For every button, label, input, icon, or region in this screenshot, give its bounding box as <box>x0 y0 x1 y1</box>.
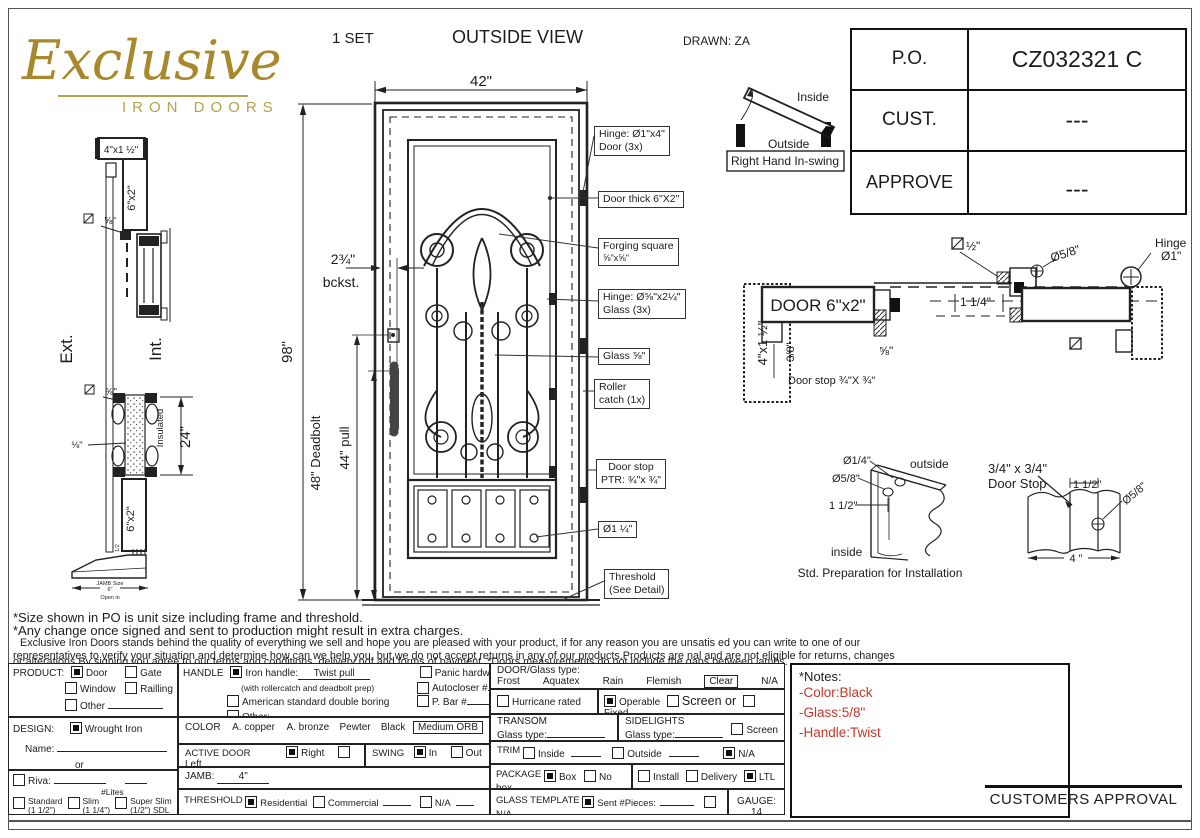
trim-inside-blank[interactable] <box>571 746 601 757</box>
stop-d112: 1 1/2" <box>1073 479 1101 491</box>
hurricane-label[interactable]: Hurricane rated <box>512 697 581 708</box>
design-or-label: or <box>69 760 90 771</box>
threshold-commercial-label[interactable]: Commercial <box>328 798 379 809</box>
product-window-label[interactable]: Window <box>80 684 116 695</box>
active-right-checkbox[interactable] <box>286 746 298 758</box>
lites-superslim-sub: (1/2") SDL <box>130 805 169 815</box>
transom-label: TRANSOM <box>497 716 611 727</box>
operable-label[interactable]: Operable <box>619 697 660 708</box>
threshold-na-label[interactable]: N/A <box>435 798 450 809</box>
customers-approval-label: CUSTOMERS APPROVAL <box>965 791 1200 808</box>
jamb-open-label: Open in <box>100 595 119 601</box>
prep-detail <box>855 461 946 560</box>
backset-dim: 2¾" <box>331 251 355 267</box>
handle-pbar-blank[interactable] <box>467 694 490 705</box>
callout-text: Hinge: Ø⅝"x2¼" <box>603 291 681 304</box>
prep-d58: Ø5/8" <box>832 473 860 485</box>
transom-cell: TRANSOM Glass type: <box>490 714 618 741</box>
callout-text: Threshold <box>609 571 664 584</box>
callout-text: Roller <box>599 381 645 394</box>
threshold-label: THRESHOLD <box>184 795 243 806</box>
side-member-lower: 6"x2" <box>125 506 137 532</box>
plan-58-dim: ⅝" <box>879 344 893 358</box>
package-ltl-checkbox[interactable] <box>744 770 756 782</box>
handle-american-label[interactable]: American standard double boring <box>242 697 389 708</box>
stop-d4: 4 " <box>1069 553 1082 565</box>
swing-form-label: SWING <box>372 748 404 759</box>
order-notes-title: *Notes: <box>799 669 1061 684</box>
product-window-checkbox[interactable] <box>65 682 77 694</box>
color-pewter-option[interactable]: Pewter <box>340 722 371 733</box>
lites-slim-checkbox[interactable] <box>68 797 80 809</box>
order-note-color: -Color:Black <box>799 685 1061 700</box>
product-cell: PRODUCT: Door Gate Window Railling Other <box>8 663 178 717</box>
swing-cell: SWING In Out <box>365 744 490 767</box>
prep-caption: Std. Preparation for Installation <box>798 566 963 580</box>
prep-d112: 1 1/2" <box>829 500 857 512</box>
callout-glass-hinge: Hinge: Ø⅝"x2¼" Glass (3x) <box>598 289 686 319</box>
riva-blank2[interactable] <box>125 773 147 784</box>
plan-d58-label: Ø5/8" <box>1049 242 1082 265</box>
jamb-size-value: 6" <box>107 587 112 593</box>
plan-hinge-label1: Hinge <box>1155 236 1187 250</box>
handle-american-checkbox[interactable] <box>227 695 239 707</box>
callout-threshold: Threshold (See Detail) <box>604 569 669 599</box>
color-label: COLOR <box>185 722 221 733</box>
stop-d58: Ø5/8" <box>1120 480 1149 507</box>
glass-flemish-option[interactable]: Flemish <box>646 676 681 687</box>
screen-checkbox[interactable] <box>667 695 679 707</box>
design-cell: DESIGN: Wrought Iron Name: or <box>8 717 178 770</box>
hurricane-cell: Hurricane rated <box>490 689 598 714</box>
jamb-value[interactable]: 4" <box>217 771 269 784</box>
trim-outside-checkbox[interactable] <box>612 747 624 759</box>
plan-door-label: DOOR 6"x2" <box>770 296 865 315</box>
handle-other-blank[interactable] <box>273 709 353 717</box>
callout-text: PTR: ¾"x ¾" <box>601 474 661 487</box>
product-other-blank[interactable] <box>108 698 163 709</box>
side-five8-upper: ⅝" <box>104 216 116 227</box>
product-other-checkbox[interactable] <box>65 699 77 711</box>
design-name-label: Name: <box>25 744 54 755</box>
gt-na-checkbox[interactable] <box>704 796 716 808</box>
sidelights-screen-checkbox[interactable] <box>731 723 743 735</box>
swing-in-label[interactable]: In <box>429 748 437 759</box>
callout-text: catch (1x) <box>599 394 645 407</box>
trim-cell: TRIM Inside Outside N/A <box>490 741 785 764</box>
ext-label: Ext. <box>57 334 76 363</box>
side-top-dim: 4"x1 ½" <box>104 145 139 156</box>
design-wrought-label[interactable]: Wrought Iron <box>85 724 143 735</box>
callout-door-hinge: Hinge: Ø1"x4" Door (3x) <box>594 126 670 156</box>
order-note-handle: -Handle:Twist <box>799 725 1061 740</box>
handle-pbar-label[interactable]: P. Bar # <box>432 697 467 708</box>
color-mediumorb-selected[interactable]: Medium ORB <box>413 721 483 734</box>
stop-title1: 3/4" x 3/4" <box>988 461 1047 476</box>
int-label: Int. <box>146 337 165 361</box>
callout-text: Door (3x) <box>599 141 665 154</box>
package-right-cell: Install Delivery LTL <box>632 764 785 789</box>
riva-label[interactable]: Riva: <box>28 776 51 787</box>
order-note-glass: -Glass:5/8" <box>799 705 1061 720</box>
fixed-checkbox[interactable] <box>743 695 755 707</box>
package-install-checkbox[interactable] <box>638 770 650 782</box>
handle-iron-value[interactable]: Twist pull <box>298 668 370 680</box>
glass-template-label: GLASS TEMPLATE <box>496 795 580 806</box>
sidelights-cell: SIDELIGHTS Glass type: Screen <box>618 714 785 741</box>
operable-checkbox[interactable] <box>604 695 616 707</box>
riva-blank1[interactable] <box>54 773 106 784</box>
package-box-label[interactable]: Box <box>559 772 576 783</box>
stop-title2: Door Stop <box>988 476 1047 491</box>
callout-text: Ø1 ¼" <box>603 523 632 536</box>
handle-iron-label[interactable]: Iron handle: <box>245 668 298 679</box>
active-door-cell: ACTIVE DOOR Right Left <box>178 744 365 767</box>
plan-doorstop-label: Door stop ¾"X ¾" <box>788 375 875 387</box>
hurricane-checkbox[interactable] <box>497 695 509 707</box>
callout-text: ⅝"x⅝" <box>603 253 674 264</box>
transom-glass-blank[interactable] <box>547 727 605 738</box>
product-door-label[interactable]: Door <box>86 668 108 679</box>
color-cell: COLOR A. copper A. bronze Pewter Black M… <box>178 717 490 744</box>
jamb-label: JAMB: <box>185 771 214 782</box>
door-outside-view <box>298 81 600 605</box>
sidelights-glass-blank[interactable] <box>675 727 723 738</box>
glass-clear-option-selected[interactable]: Clear <box>704 675 738 688</box>
operable-cell: Operable Screen or Fixed <box>598 689 785 714</box>
package-cell: PACKAGE Box No box <box>490 764 632 789</box>
gt-sent-label[interactable]: Sent #Pieces: <box>597 798 656 809</box>
trim-na-label[interactable]: N/A <box>738 749 755 760</box>
threshold-residential-checkbox[interactable] <box>245 796 257 808</box>
side-eighth-dim: ⅛" <box>71 440 82 451</box>
active-right-label[interactable]: Right <box>301 748 324 759</box>
callout-door-thick: Door thick 6"X2" <box>598 191 684 208</box>
lites-standard-sub: (1 1/2") <box>28 805 56 815</box>
plan-jamb-label: 4"x1 ½" <box>755 320 770 365</box>
note-line-3: Exclusive Iron Doors stands behind the q… <box>20 637 860 649</box>
insulated-label: Insulated <box>155 409 166 448</box>
handle-iron-note: (with rollercatch and deadbolt prep) <box>241 683 374 693</box>
pull-dim: 44" pull <box>337 426 352 469</box>
sidelights-glass-label: Glass type: <box>625 730 675 741</box>
screen-label[interactable]: Screen or <box>682 694 736 708</box>
active-door-label: ACTIVE DOOR <box>185 748 250 759</box>
callout-door-stop: Door stop PTR: ¾"x ¾" <box>596 459 666 489</box>
callout-text: Hinge: Ø1"x4" <box>599 128 665 141</box>
trim-inside-checkbox[interactable] <box>523 747 535 759</box>
design-name-blank[interactable] <box>57 741 167 752</box>
threshold-na-blank[interactable] <box>456 795 474 806</box>
lites-standard-checkbox[interactable] <box>13 797 25 809</box>
lites-header: #Lites <box>101 787 124 797</box>
active-left-label[interactable]: Left <box>185 759 202 767</box>
callout-text: (See Detail) <box>609 584 664 597</box>
backset-label: bckst. <box>323 274 360 290</box>
handle-panic-checkbox[interactable] <box>420 666 432 678</box>
gauge-cell: GAUGE: 14 <box>728 789 785 815</box>
callout-diameter: Ø1 ¼" <box>598 521 637 538</box>
threshold-cell: THRESHOLD Residential Commercial N/A <box>178 789 490 815</box>
gt-sent-checkbox[interactable] <box>582 796 594 808</box>
gt-na-label[interactable]: N/A <box>496 809 512 815</box>
callout-text: Door stop <box>601 461 661 474</box>
gauge-label: GAUGE: 14 <box>737 796 776 815</box>
trim-outside-label[interactable]: Outside <box>627 749 661 760</box>
color-bronze-option[interactable]: A. bronze <box>286 722 329 733</box>
page-bottom-line <box>8 820 1192 822</box>
plan-half-dim: ½" <box>966 239 980 253</box>
package-delivery-label[interactable]: Delivery <box>701 772 737 783</box>
design-wrought-checkbox[interactable] <box>70 722 82 734</box>
callout-text: Door thick 6"X2" <box>603 193 679 206</box>
transom-glass-label: Glass type: <box>497 730 547 741</box>
gt-sent-blank[interactable] <box>660 795 694 806</box>
signature-line[interactable] <box>985 785 1182 788</box>
doorglass-cell: DOOR/Glass type: Frost Aquatex Rain Flem… <box>490 663 785 689</box>
plan-114-dim: 1 1/4" <box>960 295 991 309</box>
plan-38-dim: 3/8" <box>785 342 797 361</box>
prep-d14: Ø1/4" <box>843 455 871 467</box>
callout-glass: Glass ⅝" <box>598 348 650 365</box>
plan-hinge-label2: Ø1" <box>1161 249 1181 263</box>
threshold-na-checkbox[interactable] <box>420 796 432 808</box>
trim-inside-label[interactable]: Inside <box>538 749 565 760</box>
prep-inside-label: inside <box>831 545 863 559</box>
handle-iron-checkbox[interactable] <box>230 666 242 678</box>
side-half-dim: 1/2 <box>115 544 121 552</box>
trim-outside-blank[interactable] <box>669 746 699 757</box>
product-gate-label[interactable]: Gate <box>140 668 162 679</box>
glass-template-cell: GLASS TEMPLATE Sent #Pieces: N/A <box>490 789 728 815</box>
threshold-commercial-blank[interactable] <box>383 795 411 806</box>
glass-frost-option[interactable]: Frost <box>497 676 520 687</box>
jamb-cell: JAMB: 4" <box>178 767 490 789</box>
product-railing-checkbox[interactable] <box>125 682 137 694</box>
dim-42: 42" <box>470 73 492 90</box>
note-line-2: *Any change once signed and sent to prod… <box>13 623 463 638</box>
side-member-upper: 6"x2" <box>126 185 138 211</box>
product-other-label[interactable]: Other <box>80 701 105 712</box>
threshold-commercial-checkbox[interactable] <box>313 796 325 808</box>
design-label: DESIGN: <box>13 724 54 735</box>
handle-autocloser-label[interactable]: Autocloser # <box>432 683 488 694</box>
package-install-label[interactable]: Install <box>653 772 679 783</box>
riva-lites-cell: Riva: #Lites Standard(1 1/2") Slim(1 1/4… <box>8 770 178 815</box>
swing-in-checkbox[interactable] <box>414 746 426 758</box>
threshold-residential-label[interactable]: Residential <box>260 798 307 809</box>
deadbolt-dim: 48" Deadbolt <box>308 415 323 490</box>
package-ltl-label[interactable]: LTL <box>759 772 776 783</box>
swing-label: Right Hand In-swing <box>731 154 839 168</box>
product-door-checkbox[interactable] <box>71 666 83 678</box>
dim-98: 98" <box>279 341 296 363</box>
handle-cell: HANDLE Iron handle:Twist pull Panic hard… <box>178 663 490 717</box>
glass-rain-option[interactable]: Rain <box>603 676 624 687</box>
handle-label: HANDLE <box>183 668 224 679</box>
glass-aquatex-option[interactable]: Aquatex <box>543 676 580 687</box>
callout-forging-square: Forging square ⅝"x⅝" <box>598 238 679 266</box>
color-copper-option[interactable]: A. copper <box>232 722 275 733</box>
handle-panic-label[interactable]: Panic hardware <box>435 668 490 679</box>
callout-text: Forging square <box>603 240 674 253</box>
side-five8-lower: ⅝" <box>105 387 117 398</box>
sidelights-screen-label[interactable]: Screen <box>746 725 778 736</box>
swing-outside-label: Outside <box>768 137 810 151</box>
product-railing-label[interactable]: Railling <box>140 684 173 695</box>
product-gate-checkbox[interactable] <box>125 666 137 678</box>
lites-slim-sub: (1 1/4") <box>83 805 111 815</box>
swing-out-label[interactable]: Out <box>466 748 482 759</box>
package-delivery-checkbox[interactable] <box>686 770 698 782</box>
dim-24: 24" <box>177 426 194 448</box>
handle-autocloser-checkbox[interactable] <box>417 682 429 694</box>
trim-label: TRIM <box>497 745 520 756</box>
swing-out-checkbox[interactable] <box>451 746 463 758</box>
package-nobox-checkbox[interactable] <box>584 770 596 782</box>
package-label: PACKAGE <box>496 769 541 780</box>
glass-na-option[interactable]: N/A <box>761 676 778 687</box>
callout-roller-catch: Roller catch (1x) <box>594 379 650 409</box>
callout-text: Glass (3x) <box>603 304 681 317</box>
handle-pbar-checkbox[interactable] <box>417 695 429 707</box>
package-box-checkbox[interactable] <box>544 770 556 782</box>
trim-na-checkbox[interactable] <box>723 747 735 759</box>
handle-other-checkbox[interactable] <box>227 710 239 717</box>
callout-text: Glass ⅝" <box>603 350 645 363</box>
lites-superslim-checkbox[interactable] <box>115 797 127 809</box>
prep-outside-label: outside <box>910 457 949 471</box>
swing-inside-label: Inside <box>797 90 829 104</box>
active-left-checkbox[interactable] <box>338 746 350 758</box>
riva-checkbox[interactable] <box>13 774 25 786</box>
product-label: PRODUCT: <box>13 668 64 679</box>
color-black-option[interactable]: Black <box>381 722 405 733</box>
